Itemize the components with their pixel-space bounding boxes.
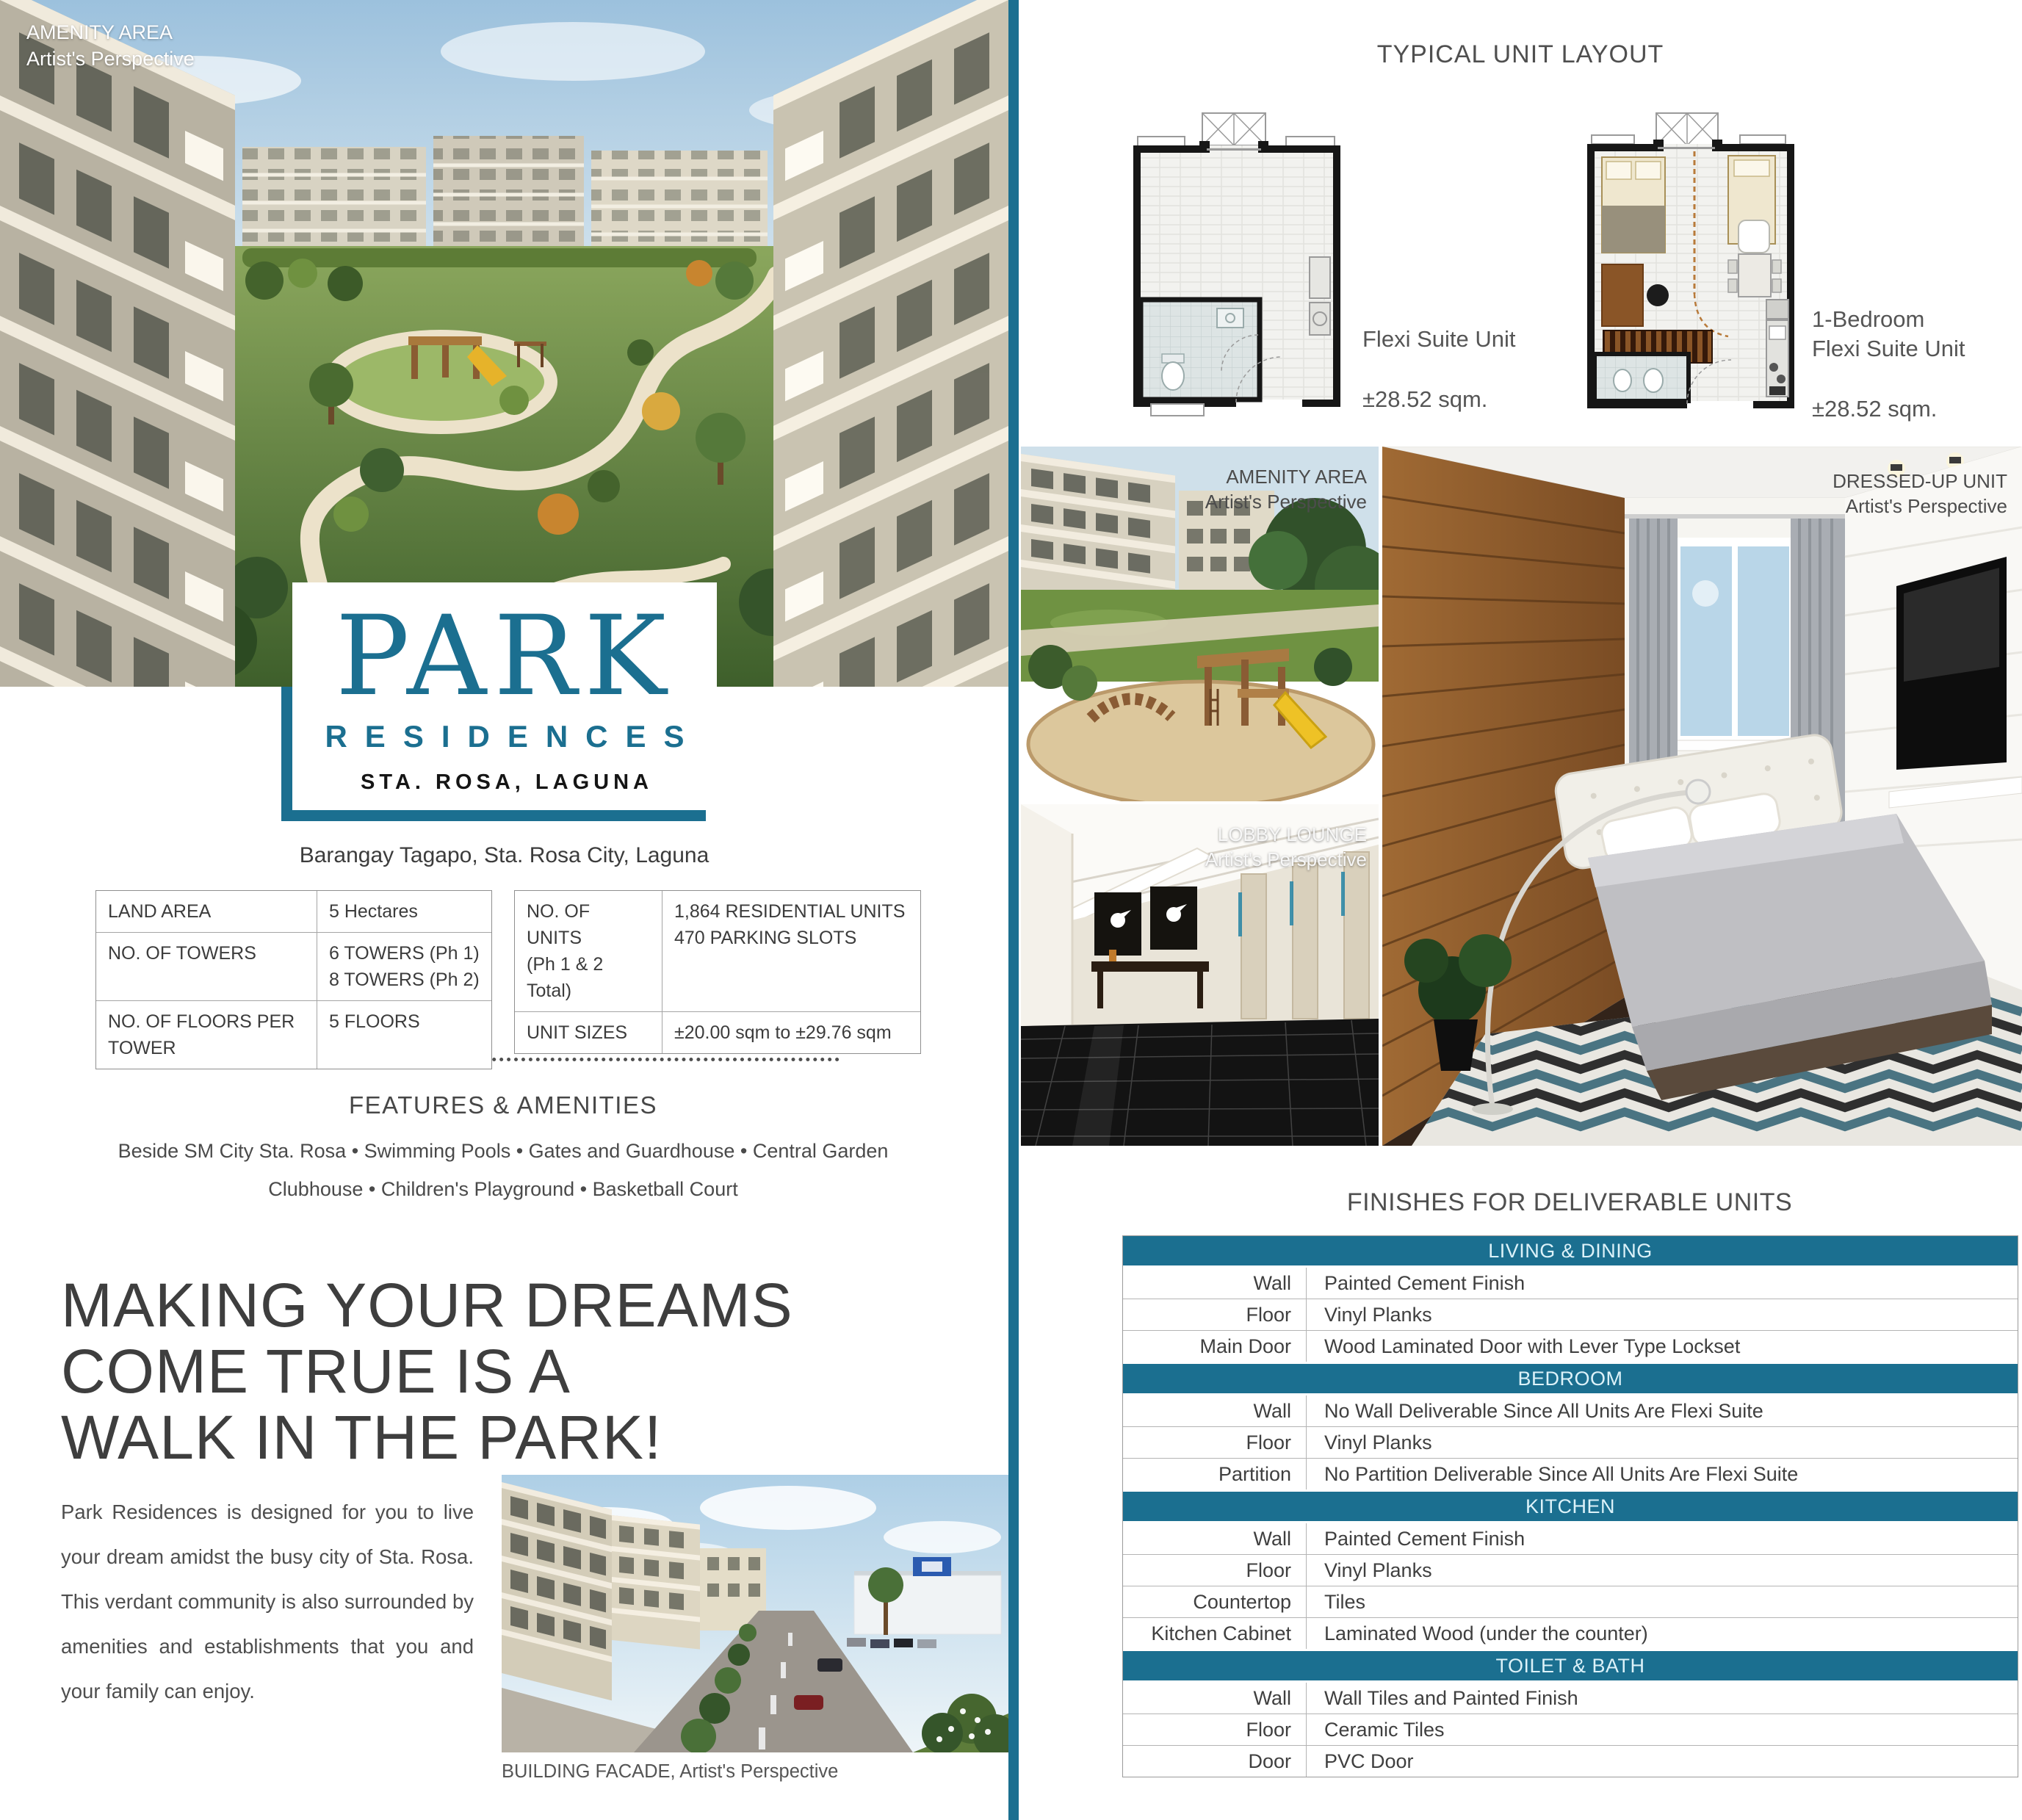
spec-value-line: 1,864 RESIDENTIAL UNITS	[674, 898, 909, 925]
logo-name: PARK	[292, 602, 717, 712]
spec-value: 5 Hectares	[317, 891, 491, 932]
finishes-value: Wood Laminated Door with Lever Type Lock…	[1307, 1332, 2018, 1361]
spec-value-line: 6 TOWERS (Ph 1)	[329, 940, 480, 967]
bedroom-rendering	[1382, 447, 2022, 1146]
finishes-value: No Partition Deliverable Since All Units…	[1307, 1460, 2018, 1489]
finishes-key: Floor	[1123, 1299, 1307, 1330]
finishes-table: LIVING & DINING Wall Painted Cement Fini…	[1122, 1235, 2018, 1777]
spec-key: NO. OF TOWERS	[96, 932, 317, 1000]
floorplan-flexi-suite-drawing	[1129, 110, 1346, 419]
logo-box: PARK RESIDENCES STA. ROSA, LAGUNA	[292, 582, 717, 810]
finishes-value: Laminated Wood (under the counter)	[1307, 1619, 2018, 1648]
photo-lobby-title: LOBBY LOUNGE	[1205, 822, 1367, 847]
plan2-name-line1: 1-Bedroom	[1812, 305, 2022, 334]
finishes-key: Countertop	[1123, 1586, 1307, 1617]
finishes-value: Ceramic Tiles	[1307, 1716, 2018, 1744]
floorplan-flexi-suite	[1129, 110, 1346, 419]
facade-image	[502, 1475, 1008, 1752]
plan1-size: ±28.52 sqm.	[1362, 385, 1568, 414]
table-row: Floor Vinyl Planks	[1123, 1299, 2018, 1330]
table-row: Door PVC Door	[1123, 1745, 2018, 1777]
finishes-value: No Wall Deliverable Since All Units Are …	[1307, 1397, 2018, 1426]
brochure-page: AMENITY AREA Artist's Perspective PARK R…	[0, 0, 2022, 1820]
finishes-value: Painted Cement Finish	[1307, 1525, 2018, 1553]
spec-value: ±20.00 sqm to ±29.76 sqm	[662, 1011, 920, 1053]
spec-value: 6 TOWERS (Ph 1) 8 TOWERS (Ph 2)	[317, 932, 491, 1000]
logo-location: STA. ROSA, LAGUNA	[292, 770, 717, 795]
plan2-label: 1-Bedroom Flexi Suite Unit ±28.52 sqm.	[1812, 305, 2022, 424]
finishes-key: Floor	[1123, 1555, 1307, 1586]
logo-subname: RESIDENCES	[292, 719, 717, 754]
table-row: Partition No Partition Deliverable Since…	[1123, 1458, 2018, 1489]
table-row: Wall Painted Cement Finish	[1123, 1268, 2018, 1299]
unit-layout-heading: TYPICAL UNIT LAYOUT	[1019, 40, 2022, 69]
finishes-key: Main Door	[1123, 1331, 1307, 1362]
photo-lobby-lounge: LOBBY LOUNGE Artist's Perspective	[1021, 804, 1379, 1146]
photo-dressed-up-unit: DRESSED-UP UNIT Artist's Perspective	[1382, 447, 2022, 1146]
finishes-value: PVC Door	[1307, 1747, 2018, 1776]
features-line-2: Clubhouse • Children's Playground • Bask…	[66, 1178, 940, 1201]
spec-key: LAND AREA	[96, 891, 317, 932]
finishes-value: Vinyl Planks	[1307, 1301, 2018, 1329]
body-paragraph: Park Residences is designed for you to l…	[61, 1489, 474, 1714]
finishes-key: Wall	[1123, 1395, 1307, 1426]
photo-dressed-sub: Artist's Perspective	[1833, 494, 2007, 519]
finishes-key: Wall	[1123, 1683, 1307, 1714]
spec-key: UNIT SIZES	[515, 1011, 662, 1053]
spec-value: 5 FLOORS	[317, 1000, 491, 1069]
address-line: Barangay Tagapo, Sta. Rosa City, Laguna	[44, 843, 964, 868]
table-row: Countertop Tiles	[1123, 1586, 2018, 1617]
spec-table-left: LAND AREA 5 Hectares NO. OF TOWERS 6 TOW…	[95, 890, 492, 1069]
spec-key-line: (Ph 1 & 2 Total)	[527, 951, 650, 1004]
finishes-section-living-dining: LIVING & DINING	[1123, 1236, 2018, 1268]
finishes-key: Door	[1123, 1746, 1307, 1777]
spec-value-line: 470 PARKING SLOTS	[674, 925, 909, 951]
table-row: Wall Painted Cement Finish	[1123, 1523, 2018, 1554]
finishes-section-bedroom: BEDROOM	[1123, 1362, 2018, 1395]
finishes-key: Wall	[1123, 1523, 1307, 1554]
hero-caption-title: AMENITY AREA	[26, 19, 195, 46]
finishes-section-toilet-bath: TOILET & BATH	[1123, 1649, 2018, 1683]
floorplan-1br-flexi-suite	[1584, 110, 1797, 419]
finishes-value: Vinyl Planks	[1307, 1429, 2018, 1457]
spec-key: NO. OF UNITS (Ph 1 & 2 Total)	[515, 891, 662, 1011]
hero-caption-sub: Artist's Perspective	[26, 46, 195, 72]
finishes-heading: FINISHES FOR DELIVERABLE UNITS	[1122, 1188, 2017, 1217]
features-heading: FEATURES & AMENITIES	[66, 1091, 940, 1119]
photo-amenity-title: AMENITY AREA	[1205, 464, 1367, 489]
headline-line-1: MAKING YOUR DREAMS	[61, 1272, 793, 1338]
table-row: Kitchen Cabinet Laminated Wood (under th…	[1123, 1617, 2018, 1649]
plan2-size: ±28.52 sqm.	[1812, 394, 2022, 424]
photo-amenity-label: AMENITY AREA Artist's Perspective	[1205, 464, 1367, 514]
finishes-value: Wall Tiles and Painted Finish	[1307, 1684, 2018, 1713]
spec-key-line: NO. OF UNITS	[527, 898, 650, 951]
table-row: Floor Vinyl Planks	[1123, 1554, 2018, 1586]
photo-dressed-label: DRESSED-UP UNIT Artist's Perspective	[1833, 469, 2007, 519]
spec-table-right: NO. OF UNITS (Ph 1 & 2 Total) 1,864 RESI…	[514, 890, 921, 1054]
photo-amenity-sub: Artist's Perspective	[1205, 489, 1367, 514]
plan2-name-line2: Flexi Suite Unit	[1812, 334, 2022, 364]
headline-line-3: WALK IN THE PARK!	[61, 1404, 793, 1470]
headline-line-2: COME TRUE IS A	[61, 1338, 793, 1404]
finishes-key: Kitchen Cabinet	[1123, 1618, 1307, 1649]
table-row: Floor Vinyl Planks	[1123, 1426, 2018, 1458]
plan1-label: Flexi Suite Unit ±28.52 sqm.	[1362, 325, 1568, 414]
floorplan-1br-drawing	[1584, 110, 1797, 419]
finishes-value: Vinyl Planks	[1307, 1556, 2018, 1585]
finishes-section-kitchen: KITCHEN	[1123, 1489, 2018, 1523]
photo-lobby-sub: Artist's Perspective	[1205, 847, 1367, 872]
photo-lobby-label: LOBBY LOUNGE Artist's Perspective	[1205, 822, 1367, 872]
table-row: Floor Ceramic Tiles	[1123, 1714, 2018, 1745]
facade-rendering	[502, 1475, 1008, 1752]
finishes-key: Partition	[1123, 1459, 1307, 1489]
table-row: Wall No Wall Deliverable Since All Units…	[1123, 1395, 2018, 1426]
finishes-key: Floor	[1123, 1427, 1307, 1458]
finishes-key: Wall	[1123, 1268, 1307, 1299]
plan1-name: Flexi Suite Unit	[1362, 325, 1568, 354]
headline: MAKING YOUR DREAMS COME TRUE IS A WALK I…	[61, 1272, 793, 1470]
finishes-value: Tiles	[1307, 1588, 2018, 1617]
features-line-1: Beside SM City Sta. Rosa • Swimming Pool…	[66, 1140, 940, 1163]
spec-value: 1,864 RESIDENTIAL UNITS 470 PARKING SLOT…	[662, 891, 920, 1011]
table-row: Main Door Wood Laminated Door with Lever…	[1123, 1330, 2018, 1362]
accent-divider	[1008, 0, 1019, 1820]
photo-dressed-title: DRESSED-UP UNIT	[1833, 469, 2007, 494]
finishes-value: Painted Cement Finish	[1307, 1269, 2018, 1298]
spec-value-line: 8 TOWERS (Ph 2)	[329, 967, 480, 993]
photo-amenity-area: AMENITY AREA Artist's Perspective	[1021, 447, 1379, 801]
spec-key: NO. OF FLOORS PER TOWER	[96, 1000, 317, 1069]
facade-caption: BUILDING FACADE, Artist's Perspective	[502, 1761, 838, 1783]
table-row: Wall Wall Tiles and Painted Finish	[1123, 1683, 2018, 1714]
finishes-key: Floor	[1123, 1714, 1307, 1745]
hero-caption: AMENITY AREA Artist's Perspective	[26, 19, 195, 72]
